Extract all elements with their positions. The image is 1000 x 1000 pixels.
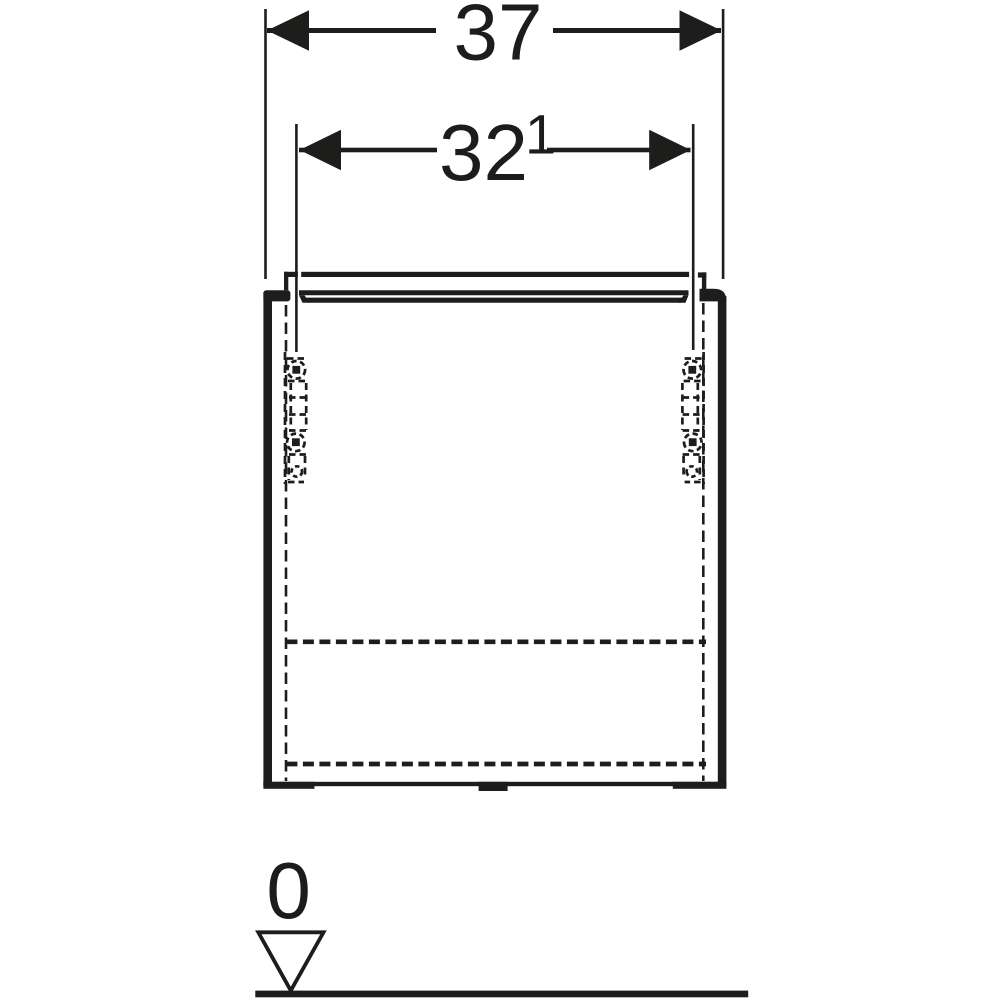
- svg-text:32: 32: [439, 108, 528, 197]
- svg-text:0: 0: [266, 846, 311, 935]
- svg-text:37: 37: [454, 0, 543, 77]
- svg-text:1: 1: [525, 103, 556, 166]
